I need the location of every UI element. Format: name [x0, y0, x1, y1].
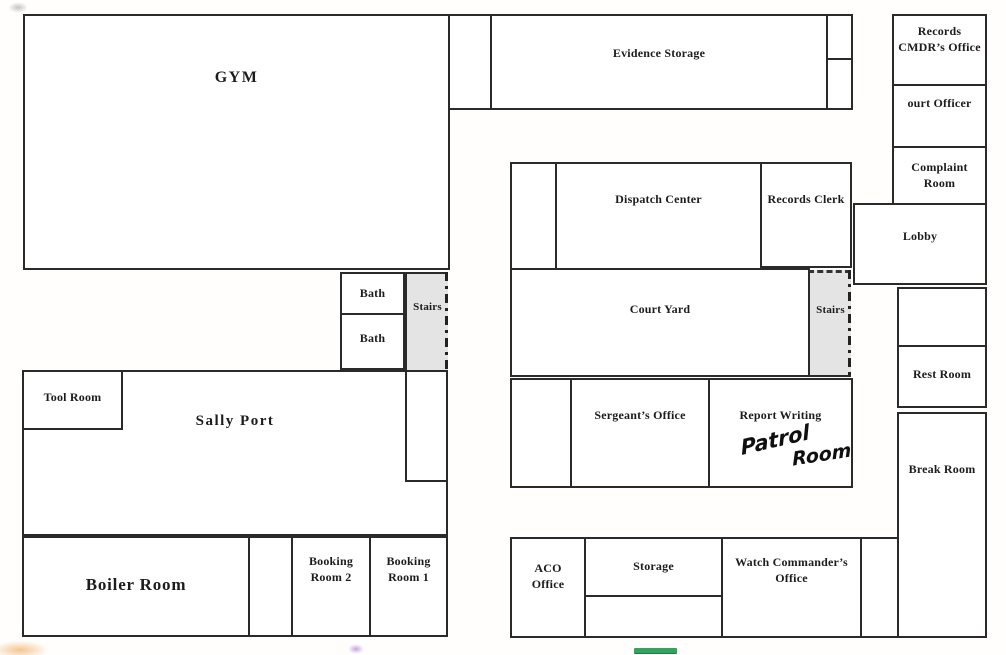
room-label-bath-lower: Bath: [360, 331, 385, 347]
room-storage-lower-cell: [584, 595, 723, 638]
scan-mark-purple: [348, 644, 364, 654]
room-sally-port-side-cell: [405, 370, 448, 482]
room-bath-upper: Bath: [340, 272, 405, 315]
room-sergeant-left-cell: [510, 378, 572, 488]
room-label-break-room: Break Room: [909, 462, 976, 478]
room-complaint-room: Complaint Room: [892, 146, 987, 205]
room-lobby: Lobby: [853, 203, 987, 285]
room-label-sergeants-office: Sergeant’s Office: [594, 408, 685, 424]
floor-plan: GYM Evidence Storage Bath Bath Stairs Sa…: [0, 0, 1006, 655]
room-records-clerk: Records Clerk: [760, 162, 852, 268]
handwritten-annotation-patrol-room: Patrol Room: [740, 428, 860, 483]
room-label-rest-room: Rest Room: [913, 367, 971, 383]
room-label-storage: Storage: [633, 559, 674, 575]
room-right-unlabeled-cell: [897, 287, 987, 347]
room-court-yard: Court Yard: [510, 268, 810, 377]
room-label-report-writing: Report Writing: [739, 408, 821, 424]
stairs-right-open-edge: [848, 270, 851, 382]
room-watch-commanders-office: Watch Commander’s Office: [721, 537, 862, 638]
room-label-sally-port: Sally Port: [196, 412, 275, 432]
room-label-tool-room: Tool Room: [44, 390, 102, 406]
room-dispatch-left-cell: [510, 162, 557, 270]
room-court-officer: ourt Officer: [892, 84, 987, 148]
room-rest-room: Rest Room: [897, 345, 987, 408]
room-label-evidence-storage: Evidence Storage: [613, 46, 705, 62]
room-label-dispatch-center: Dispatch Center: [615, 192, 702, 208]
room-label-lobby: Lobby: [903, 229, 937, 245]
room-booking-room-1: Booking Room 1: [369, 536, 448, 637]
room-label-records-clerk: Records Clerk: [768, 192, 845, 208]
room-label-booking-room-2: Booking Room 2: [309, 554, 353, 585]
room-label-stairs-right: Stairs: [816, 303, 845, 317]
room-evidence-storage: Evidence Storage: [490, 14, 828, 110]
scan-mark-orange: [0, 641, 48, 655]
room-label-watch-commanders-office: Watch Commander’s Office: [735, 555, 848, 586]
room-sergeants-office: Sergeant’s Office: [570, 378, 710, 488]
scan-mark-green: [634, 648, 677, 654]
room-evidence-right-top-cell: [826, 14, 853, 60]
room-label-court-yard: Court Yard: [630, 302, 691, 318]
room-bottom-right-cell: [860, 537, 899, 638]
room-booking-room-2: Booking Room 2: [291, 536, 371, 637]
room-records-cmdr-office: Records CMDR’s Office: [892, 14, 987, 86]
room-label-records-cmdr-office: Records CMDR’s Office: [898, 24, 980, 55]
room-boiler-room: Boiler Room: [22, 536, 250, 637]
room-label-complaint-room: Complaint Room: [911, 160, 967, 191]
scan-smudge-top-left: [8, 2, 28, 13]
room-storage: Storage: [584, 537, 723, 597]
room-aco-office: ACO Office: [510, 537, 586, 638]
room-label-court-officer: ourt Officer: [907, 96, 971, 112]
room-label-booking-room-1: Booking Room 1: [386, 554, 430, 585]
room-evidence-left-cell: [448, 14, 492, 110]
room-label-aco-office: ACO Office: [532, 561, 565, 592]
room-bath-lower: Bath: [340, 313, 405, 370]
room-evidence-right-bottom-cell: [826, 58, 853, 110]
stairs-left-open-edge: [445, 272, 448, 376]
room-break-room: Break Room: [897, 412, 987, 638]
room-label-boiler-room: Boiler Room: [86, 574, 187, 596]
room-label-gym: GYM: [215, 68, 259, 89]
room-stairs-right: Stairs: [808, 270, 851, 377]
room-tool-room: Tool Room: [22, 370, 123, 430]
room-booking-anteroom: [248, 536, 293, 637]
room-gym: GYM: [23, 14, 450, 270]
room-stairs-left: Stairs: [405, 272, 448, 374]
room-label-stairs-left: Stairs: [413, 300, 442, 314]
room-dispatch-center: Dispatch Center: [555, 162, 762, 270]
room-label-bath-upper: Bath: [360, 286, 385, 302]
